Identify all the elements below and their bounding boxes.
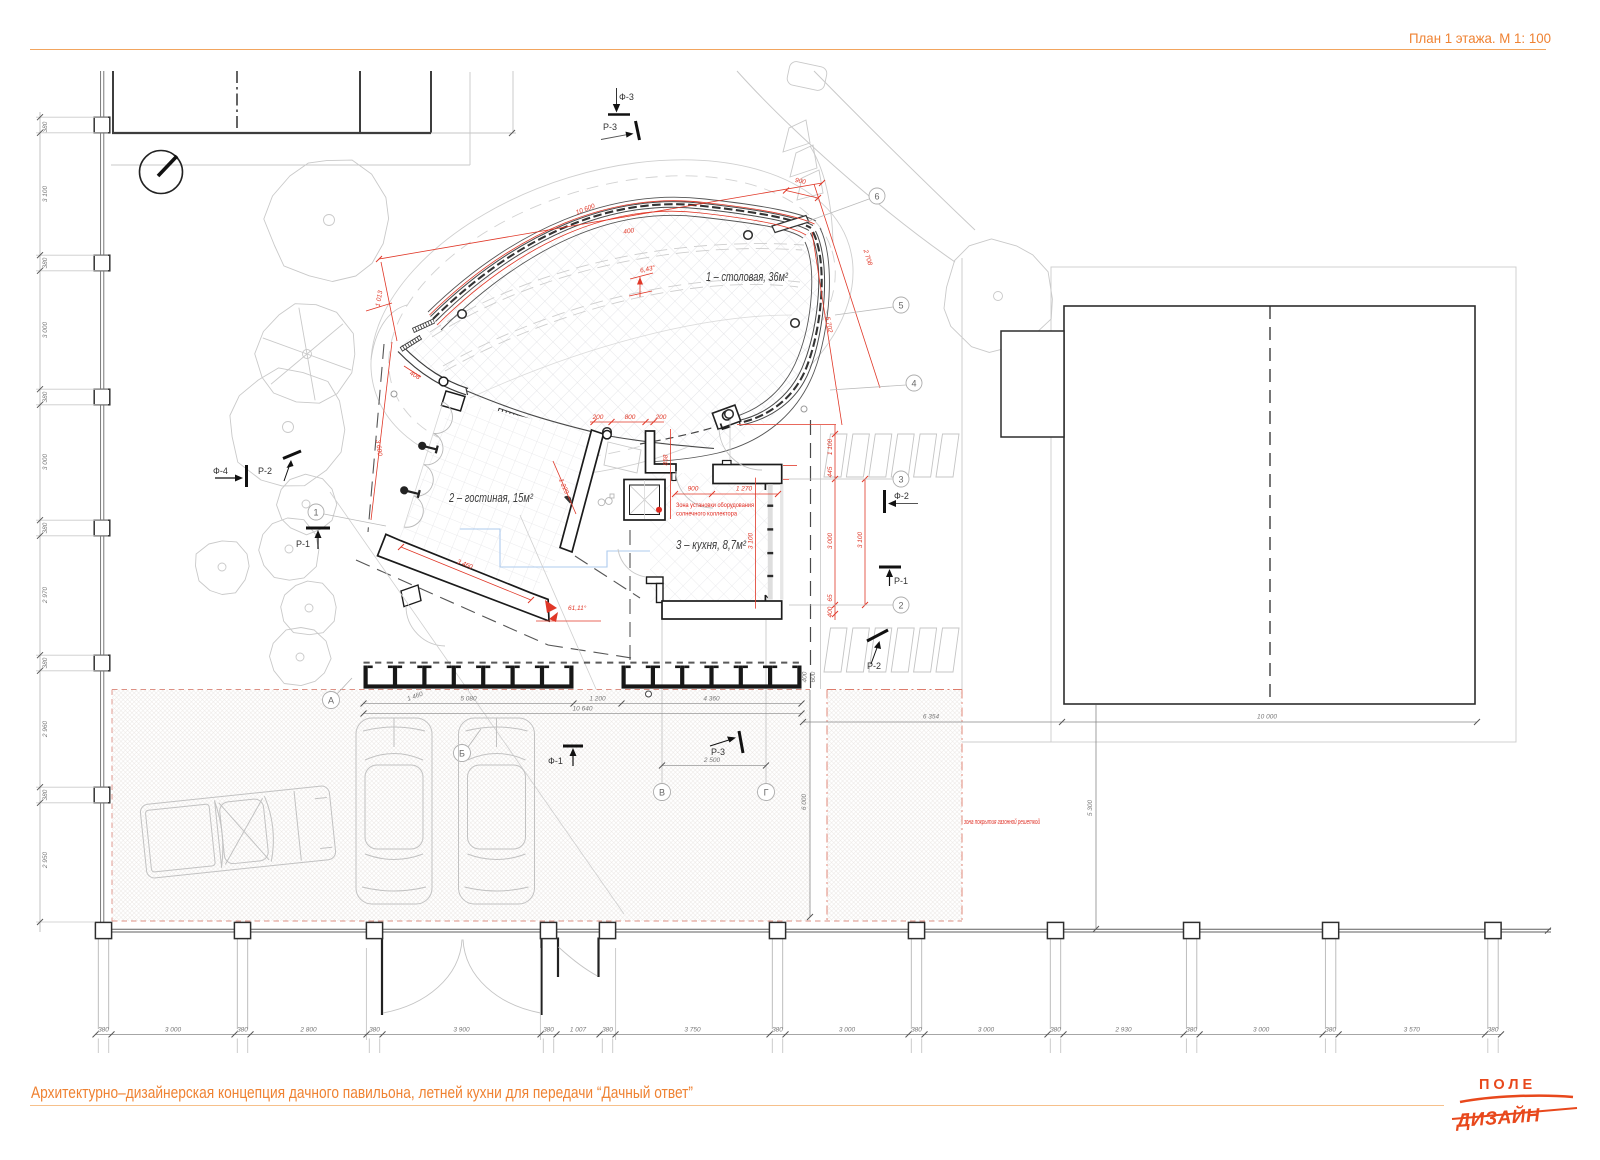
svg-text:В: В [659,788,665,798]
svg-text:2 – гостиная, 15м²: 2 – гостиная, 15м² [448,491,533,505]
svg-text:200: 200 [655,414,667,421]
svg-text:ПОЛЕ: ПОЛЕ [1479,1077,1536,1093]
svg-text:3 900: 3 900 [453,1026,470,1033]
svg-text:1 200: 1 200 [589,696,606,703]
svg-text:2 500: 2 500 [703,757,721,764]
svg-text:2 800: 2 800 [299,1026,317,1033]
svg-text:6 000: 6 000 [801,793,808,810]
svg-text:6 354: 6 354 [923,714,940,721]
svg-text:380: 380 [42,257,49,268]
svg-text:Р-2: Р-2 [867,661,881,671]
svg-text:600: 600 [810,671,817,682]
svg-text:858: 858 [663,454,670,465]
svg-text:5 080: 5 080 [460,696,477,703]
svg-text:Зона установки оборудования: Зона установки оборудования [676,501,754,509]
svg-text:1: 1 [313,508,318,518]
svg-text:2: 2 [898,601,903,611]
svg-text:380: 380 [98,1026,109,1033]
svg-text:Ф-3: Ф-3 [619,92,634,102]
svg-text:Ф-2: Ф-2 [894,491,909,501]
svg-text:3 000: 3 000 [839,1026,856,1033]
svg-text:380: 380 [1050,1026,1061,1033]
svg-text:380: 380 [1488,1026,1499,1033]
svg-text:800: 800 [625,414,636,421]
svg-text:61,11°: 61,11° [568,604,587,612]
svg-text:3 000: 3 000 [42,453,49,470]
svg-text:зона покрытия газонной решетко: зона покрытия газонной решеткой [963,818,1040,826]
svg-text:380: 380 [911,1026,922,1033]
svg-text:План 1 этажа. М 1: 100: План 1 этажа. М 1: 100 [1409,30,1551,46]
svg-text:380: 380 [42,657,49,668]
svg-text:380: 380 [42,789,49,800]
svg-text:380: 380 [42,522,49,533]
svg-text:4 360: 4 360 [703,696,720,703]
svg-text:Р-3: Р-3 [711,747,725,757]
svg-text:3 750: 3 750 [684,1026,701,1033]
svg-text:Б: Б [459,749,465,759]
svg-text:3 – кухня, 8,7м²: 3 – кухня, 8,7м² [676,538,747,552]
svg-text:10 640: 10 640 [573,706,593,713]
svg-text:А: А [328,696,334,706]
svg-text:2 970: 2 970 [42,586,49,604]
svg-text:Р-1: Р-1 [296,539,310,549]
svg-text:380: 380 [1186,1026,1197,1033]
svg-text:Ф-1: Ф-1 [548,756,563,766]
svg-text:3 100: 3 100 [857,531,864,548]
svg-text:3 100: 3 100 [42,185,49,202]
svg-text:2 960: 2 960 [42,720,49,738]
svg-text:380: 380 [237,1026,248,1033]
svg-text:Р-1: Р-1 [894,576,908,586]
svg-text:380: 380 [772,1026,783,1033]
svg-text:380: 380 [543,1026,554,1033]
svg-text:380: 380 [42,391,49,402]
svg-text:200: 200 [592,414,604,421]
svg-text:10 000: 10 000 [1257,714,1277,721]
svg-text:3 000: 3 000 [42,321,49,338]
svg-text:3 100: 3 100 [748,532,755,549]
svg-text:400: 400 [802,671,809,682]
svg-text:3 000: 3 000 [1253,1026,1270,1033]
svg-text:4: 4 [911,379,916,389]
svg-text:солнечного коллектора: солнечного коллектора [676,511,737,518]
svg-text:3: 3 [898,475,903,485]
svg-text:900: 900 [688,486,699,493]
svg-text:1 007: 1 007 [570,1026,587,1033]
svg-text:1 100: 1 100 [827,438,834,455]
svg-text:Архитектурно–дизайнерская конц: Архитектурно–дизайнерская концепция дачн… [31,1084,693,1102]
svg-text:6: 6 [874,192,879,202]
svg-text:1 270: 1 270 [736,486,753,493]
svg-text:65: 65 [827,594,834,602]
svg-text:5 300: 5 300 [1087,799,1094,816]
svg-text:3 000: 3 000 [165,1026,182,1033]
svg-text:5: 5 [898,301,903,311]
svg-text:380: 380 [602,1026,613,1033]
svg-text:445: 445 [827,466,834,477]
svg-text:380: 380 [1325,1026,1336,1033]
svg-text:Р-2: Р-2 [258,466,272,476]
svg-text:400: 400 [827,606,834,617]
svg-text:1 – столовая, 36м²: 1 – столовая, 36м² [706,270,789,284]
svg-text:3 570: 3 570 [1404,1026,1421,1033]
svg-text:Г: Г [764,788,769,798]
svg-text:Ф-4: Ф-4 [213,466,228,476]
svg-text:3 000: 3 000 [978,1026,995,1033]
svg-text:2 950: 2 950 [42,851,49,869]
svg-text:2 930: 2 930 [1114,1026,1132,1033]
svg-text:Р-3: Р-3 [603,122,617,132]
svg-text:380: 380 [369,1026,380,1033]
svg-text:380: 380 [42,121,49,132]
svg-text:3 000: 3 000 [827,532,834,549]
